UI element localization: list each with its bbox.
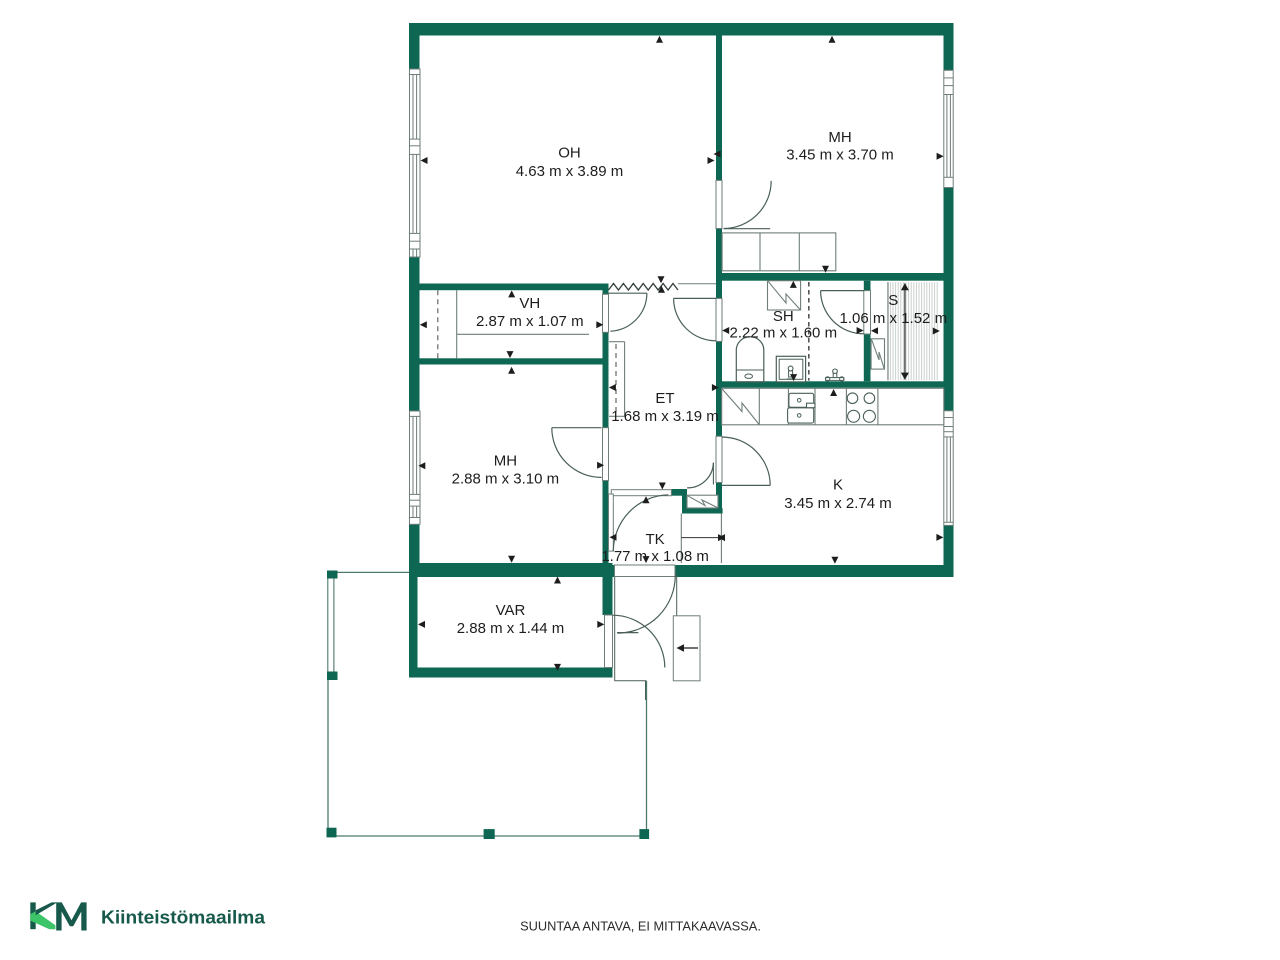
svg-text:1.68 m x 3.19 m: 1.68 m x 3.19 m [611,408,719,425]
svg-text:3.45 m x 3.70 m: 3.45 m x 3.70 m [786,147,894,164]
svg-text:2.87 m x 1.07 m: 2.87 m x 1.07 m [476,313,584,330]
svg-text:1.06 m x 1.52 m: 1.06 m x 1.52 m [840,310,948,327]
svg-text:VH: VH [519,295,540,312]
svg-text:VAR: VAR [496,602,526,619]
svg-text:Kiinteistömaailma: Kiinteistömaailma [101,906,266,927]
svg-text:OH: OH [558,144,581,161]
svg-text:K: K [833,477,843,494]
svg-text:2.22 m x 1.60 m: 2.22 m x 1.60 m [730,324,838,341]
svg-text:TK: TK [646,531,665,548]
svg-text:2.88 m x 3.10 m: 2.88 m x 3.10 m [452,471,560,488]
svg-text:1.77 m x 1.08 m: 1.77 m x 1.08 m [601,548,709,565]
svg-text:MH: MH [828,129,851,146]
svg-text:MH: MH [494,453,517,470]
svg-text:S: S [888,292,898,309]
svg-text:ET: ET [655,390,674,407]
svg-text:SUUNTAA ANTAVA, EI MITTAKAAVAS: SUUNTAA ANTAVA, EI MITTAKAAVASSA. [520,918,761,933]
svg-text:4.63 m x 3.89 m: 4.63 m x 3.89 m [516,163,624,180]
svg-text:2.88 m x 1.44 m: 2.88 m x 1.44 m [457,620,565,637]
svg-text:SH: SH [773,308,794,325]
svg-text:3.45 m x 2.74 m: 3.45 m x 2.74 m [784,495,892,512]
